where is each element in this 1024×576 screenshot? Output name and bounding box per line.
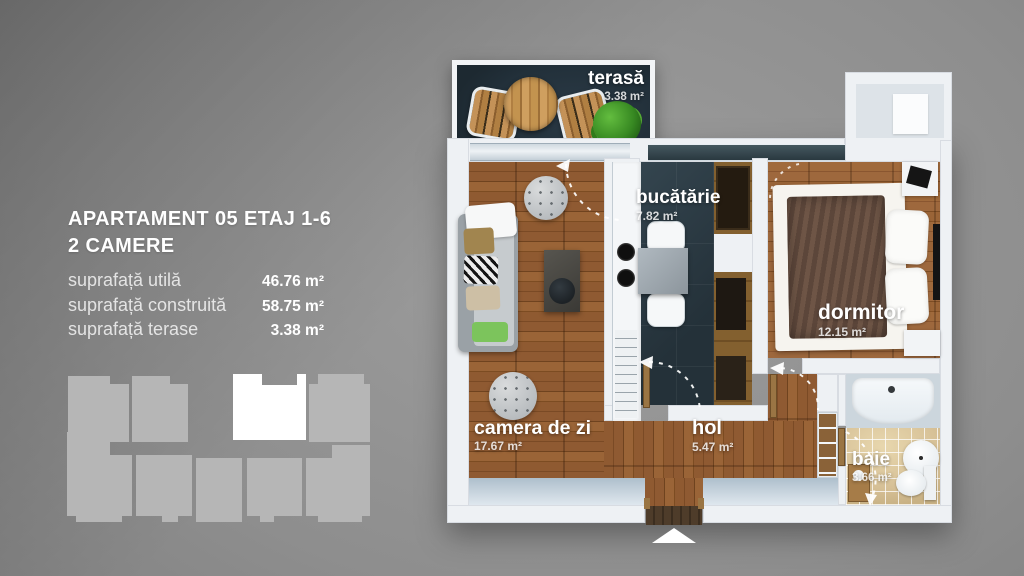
- door-swing-overlay: [0, 0, 1024, 576]
- door-arrow: [639, 356, 653, 369]
- floor-plan-poster: APARTAMENT 05 ETAJ 1-6 2 CAMERE suprafaț…: [0, 0, 1024, 576]
- door-arc-terrace: [566, 164, 623, 220]
- door-arc-kitchen: [649, 362, 700, 411]
- door-arrow: [770, 362, 784, 375]
- door-arc-bathroom: [846, 432, 876, 498]
- door-arrow: [556, 159, 570, 172]
- window-swing-arc-bedroom: [770, 164, 799, 200]
- door-arc-bedroom: [781, 368, 818, 410]
- door-arrow: [865, 493, 877, 506]
